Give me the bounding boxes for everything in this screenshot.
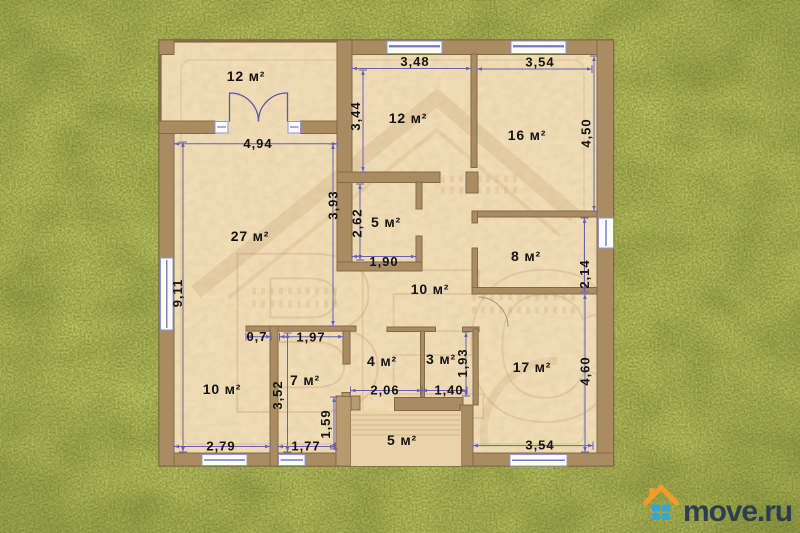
svg-text:27 м²: 27 м²	[231, 228, 269, 244]
svg-text:10 м²: 10 м²	[411, 281, 449, 297]
svg-text:0,7: 0,7	[246, 329, 267, 344]
svg-text:3,48: 3,48	[400, 54, 429, 69]
svg-text:2,62: 2,62	[350, 208, 365, 237]
svg-text:move.ru: move.ru	[683, 495, 792, 528]
svg-text:4,94: 4,94	[243, 136, 272, 151]
svg-text:4,50: 4,50	[579, 118, 594, 147]
svg-text:7 м²: 7 м²	[290, 372, 320, 388]
svg-text:5 м²: 5 м²	[371, 214, 401, 230]
svg-text:1,77: 1,77	[291, 439, 320, 454]
svg-text:1,97: 1,97	[296, 330, 325, 345]
svg-text:3,52: 3,52	[270, 380, 285, 409]
svg-text:1,40: 1,40	[434, 383, 463, 398]
svg-text:1,93: 1,93	[455, 348, 470, 377]
svg-text:3,54: 3,54	[525, 55, 554, 70]
svg-text:17 м²: 17 м²	[513, 359, 551, 375]
svg-text:2,06: 2,06	[370, 383, 399, 398]
svg-text:1,59: 1,59	[318, 409, 333, 438]
svg-text:4 м²: 4 м²	[367, 353, 397, 369]
svg-text:2,14: 2,14	[577, 259, 592, 288]
svg-text:1,90: 1,90	[369, 254, 398, 269]
svg-text:8 м²: 8 м²	[511, 248, 541, 264]
svg-text:3,93: 3,93	[326, 190, 341, 219]
svg-text:2,79: 2,79	[206, 439, 235, 454]
svg-text:3,54: 3,54	[525, 438, 554, 453]
svg-text:5 м²: 5 м²	[387, 432, 417, 448]
svg-text:12 м²: 12 м²	[227, 68, 265, 84]
svg-text:4,60: 4,60	[578, 356, 593, 385]
svg-text:3 м²: 3 м²	[426, 351, 456, 367]
svg-text:10 м²: 10 м²	[203, 381, 241, 397]
svg-text:3,44: 3,44	[348, 101, 363, 130]
svg-text:12 м²: 12 м²	[389, 110, 427, 126]
svg-text:16 м²: 16 м²	[508, 127, 546, 143]
svg-text:9,11: 9,11	[170, 279, 185, 308]
